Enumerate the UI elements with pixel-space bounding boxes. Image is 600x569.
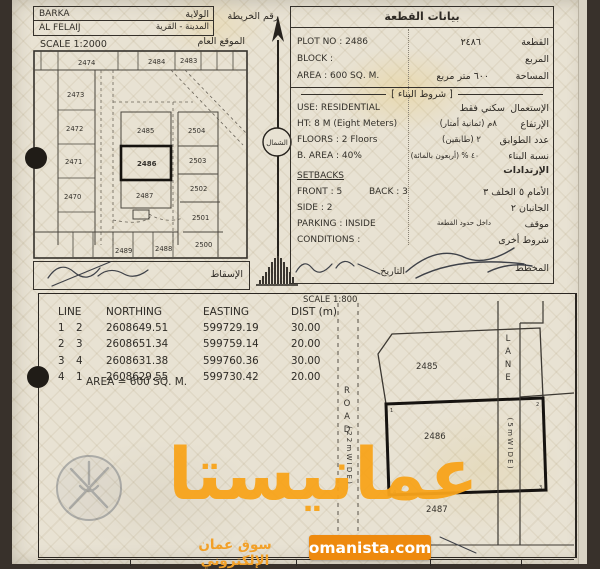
col-header-northing: NORTHING xyxy=(106,306,203,322)
coords-row-4-cell-1: 4 xyxy=(58,371,76,387)
col-header-easting: EASTING xyxy=(203,306,291,322)
watermark-tagline: سوق عمان الإلكتروني xyxy=(162,537,308,569)
side-en: SIDE : 2 xyxy=(297,203,332,213)
coords-row-3-cell-1: 3 xyxy=(58,355,76,371)
coords-row-2-cell-1: 2 xyxy=(58,338,76,354)
map-plot-2484: 2484 xyxy=(148,58,165,66)
map-plot-2487: 2487 xyxy=(136,192,153,200)
coords-row-2-cell-3: 2608651.34 xyxy=(106,338,203,354)
map-plot-2500: 2500 xyxy=(195,241,212,249)
town-value: AL FELAIJ xyxy=(39,23,81,33)
map-plot-2471: 2471 xyxy=(65,158,82,166)
north-arrow: الشمال xyxy=(248,6,292,290)
plot-data-title: بيانات القطعة xyxy=(291,10,553,23)
height-en: HT: 8 M (Eight Meters) xyxy=(297,119,397,129)
height-label-ar: الإرتفاع xyxy=(520,119,549,130)
watermark-brand: عمانيستا xyxy=(168,438,479,510)
front-back-ar: الأمام ٥ الخلف ٣ xyxy=(483,187,549,198)
building-conditions-header: [ شروط البناء ] xyxy=(301,89,543,100)
north-label: الشمال xyxy=(266,139,288,147)
map-plot-2483: 2483 xyxy=(180,57,197,65)
use-ar: سكني فقط xyxy=(460,103,505,114)
signature-scribble-left xyxy=(40,250,220,294)
area-label-ar: المساحة xyxy=(516,71,549,82)
plot-no-ar: ٢٤٨٦ xyxy=(461,37,481,48)
corner-3: 3 xyxy=(539,485,542,491)
building-conditions-label: [ شروط البناء ] xyxy=(386,89,458,100)
paper-edge xyxy=(578,0,587,564)
corner-1: 1 xyxy=(390,408,393,414)
plot-no-en: PLOT NO : 2486 xyxy=(297,37,368,47)
coords-row-3-cell-3: 2608631.38 xyxy=(106,355,203,371)
side-row: SIDE : 2 الجانبان ٢ xyxy=(291,203,553,217)
front-back-row: FRONT : 5 BACK : 3 الأمام ٥ الخلف ٣ xyxy=(291,187,553,201)
lane-width-note: ( 5 m W I D E ) xyxy=(506,417,514,468)
map-plot-2473: 2473 xyxy=(67,91,84,99)
built-area-label-ar: نسبة البناء xyxy=(508,151,549,162)
coords-table: LINENORTHINGEASTINGDIST (m)122608649.515… xyxy=(58,306,345,387)
oman-emblem-stamp-icon xyxy=(50,450,130,530)
omanista-site-link[interactable]: omanista.com xyxy=(309,535,431,560)
parking-label-ar: موقف xyxy=(525,219,549,230)
coords-row-1-cell-2: 2 xyxy=(76,322,106,338)
location-map-title: الموقع العام xyxy=(193,36,245,47)
area-en: AREA : 600 SQ. M. xyxy=(297,71,379,81)
map-plot-2501: 2501 xyxy=(192,214,209,222)
coords-row-4-cell-4: 599730.42 xyxy=(203,371,291,387)
coords-row-1-cell-1: 1 xyxy=(58,322,76,338)
hole-punch-bottom xyxy=(27,366,49,388)
location-map: 2474 2484 2483 2473 2472 2471 2470 2485 … xyxy=(33,50,248,260)
use-label-ar: الإستعمال xyxy=(510,103,549,114)
use-row: USE: RESIDENTIAL سكني فقط الإستعمال xyxy=(291,103,553,117)
use-en: USE: RESIDENTIAL xyxy=(297,103,380,113)
map-plot-2470: 2470 xyxy=(64,193,81,201)
coords-row-3-cell-4: 599760.36 xyxy=(203,355,291,371)
wilaya-value: BARKA xyxy=(39,9,70,19)
map-plot-2486: 2486 xyxy=(137,160,157,168)
site-plan: 2485 2486 2487 1 2 3 4 ROAD ( 2 2 m W I … xyxy=(320,293,574,556)
wilaya-label: الولاية xyxy=(185,9,209,20)
front-en: FRONT : 5 xyxy=(297,187,342,197)
map-plot-2472: 2472 xyxy=(66,125,83,133)
map-plot-2485: 2485 xyxy=(137,127,154,135)
back-en: BACK : 3 xyxy=(369,187,408,197)
corner-2: 2 xyxy=(536,402,539,408)
coords-row-2-cell-4: 599759.14 xyxy=(203,338,291,354)
coords-row-1-cell-3: 2608649.51 xyxy=(106,322,203,338)
area-ar: ٦٠٠ متر مربع xyxy=(436,71,489,82)
block-label-ar: المربع xyxy=(525,54,549,65)
setbacks-en: SETBACKS xyxy=(297,171,344,181)
floors-ar: ٢ (طابقين) xyxy=(442,135,481,145)
built-area-en: B. AREA : 40% xyxy=(297,151,362,161)
coords-row-3-cell-2: 4 xyxy=(76,355,106,371)
built-area-ar: ٤٠ % (أربعون بالمائة) xyxy=(411,151,479,160)
signature-scribbles-right xyxy=(288,238,548,290)
lane-label: LANE xyxy=(505,334,511,383)
location-map-scale: SCALE 1:2000 xyxy=(40,39,107,50)
omanista-site-text: omanista.com xyxy=(309,539,432,557)
col-header-line: LINE xyxy=(58,306,106,322)
floors-label-ar: عدد الطوابق xyxy=(500,135,549,146)
block-en: BLOCK : xyxy=(297,54,333,64)
height-ar: ٨م (ثمانية أمتار) xyxy=(440,119,497,129)
coords-area-note: AREA = 600 SQ. M. xyxy=(86,376,187,388)
map-plot-2474: 2474 xyxy=(78,59,95,67)
setbacks-en-row: SETBACKS xyxy=(291,171,553,184)
coords-row-2-cell-2: 3 xyxy=(76,338,106,354)
plot-no-label-ar: القطعة xyxy=(521,37,549,48)
floors-en: FLOORS : 2 Floors xyxy=(297,135,377,145)
map-plot-2502: 2502 xyxy=(190,185,207,193)
coords-row-1-cell-4: 599729.19 xyxy=(203,322,291,338)
plot-no-row: PLOT NO : 2486 ٢٤٨٦ القطعة xyxy=(291,37,553,51)
hole-punch-top xyxy=(25,147,47,169)
parking-row: PARKING : INSIDE داخل حدود القطعة موقف xyxy=(291,219,553,233)
map-plot-2503: 2503 xyxy=(189,157,206,165)
map-plot-2504: 2504 xyxy=(188,127,205,135)
town-label: المدينة - القرية xyxy=(156,22,209,32)
height-row: HT: 8 M (Eight Meters) ٨م (ثمانية أمتار)… xyxy=(291,119,553,133)
floors-row: FLOORS : 2 Floors ٢ (طابقين) عدد الطوابق xyxy=(291,135,553,149)
block-row: BLOCK : المربع xyxy=(291,54,553,68)
header-box: BARKA AL FELAIJ الولاية المدينة - القرية xyxy=(33,6,214,36)
parking-en: PARKING : INSIDE xyxy=(297,219,376,229)
built-area-row: B. AREA : 40% ٤٠ % (أربعون بالمائة) نسبة… xyxy=(291,151,553,165)
side-ar: الجانبان ٢ xyxy=(511,203,549,214)
area-row: AREA : 600 SQ. M. ٦٠٠ متر مربع المساحة xyxy=(291,71,553,85)
parking-ar: داخل حدود القطعة xyxy=(437,219,491,227)
site-plot-2485: 2485 xyxy=(416,362,438,372)
